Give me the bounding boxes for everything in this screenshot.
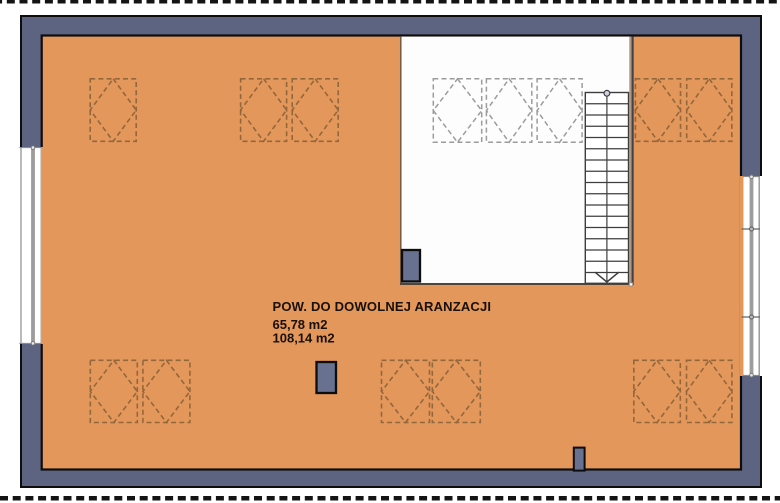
svg-text:65,78 m2: 65,78 m2 <box>273 317 328 332</box>
svg-text:108,14 m2: 108,14 m2 <box>273 331 335 346</box>
svg-text:POW. DO DOWOLNEJ ARANZACJI: POW. DO DOWOLNEJ ARANZACJI <box>273 299 492 314</box>
